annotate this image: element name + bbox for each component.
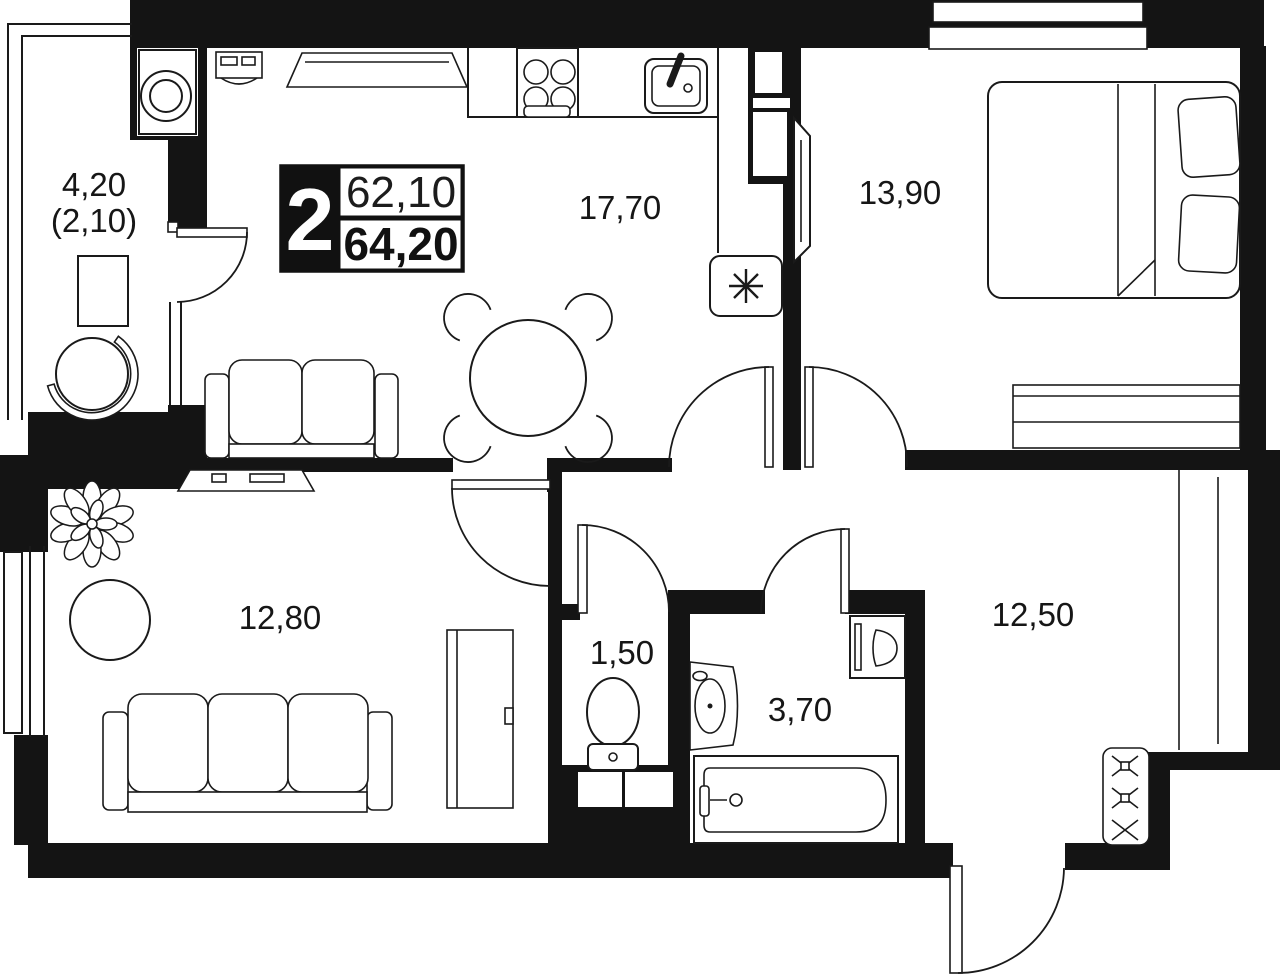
- bathroom-door-leaf: [841, 529, 849, 613]
- dining-chair: [444, 416, 491, 463]
- wall-segment: [550, 458, 672, 472]
- wall-segment: [1240, 46, 1266, 450]
- wardrobe-handle: [505, 708, 513, 724]
- bedroom-furniture: [794, 82, 1241, 448]
- tv-console: [178, 470, 314, 491]
- wall-segment: [168, 140, 207, 228]
- plant: [48, 481, 135, 567]
- bathroom-sink-tap: [693, 672, 707, 681]
- bathroom-sink-drain: [708, 704, 713, 709]
- bathroom-door-swing: [761, 529, 845, 613]
- intercom-curve: [221, 78, 257, 84]
- wall-segment: [168, 405, 207, 458]
- sofa-three-seat: [103, 694, 392, 812]
- balcony-area-note-label: (2,10): [51, 202, 137, 239]
- badge-living-area: 62,10: [346, 168, 456, 217]
- balcony-table: [78, 256, 128, 326]
- bathroom-area-label: 3,70: [768, 691, 832, 728]
- bedroom-balcony-window: [929, 27, 1147, 49]
- badge-rooms-count: 2: [286, 170, 335, 269]
- second-room-area-label: 12,50: [992, 596, 1075, 633]
- dining-chair: [444, 294, 491, 341]
- vent-compartment: [753, 98, 790, 108]
- balcony-area-label: 4,20: [62, 166, 126, 203]
- pillow: [1178, 195, 1240, 274]
- bedroom-tv: [794, 118, 810, 262]
- refrigerator-icon: [729, 269, 763, 303]
- bathtub-faucet: [700, 786, 709, 816]
- vent-compartment: [755, 52, 782, 93]
- dining-chair: [565, 294, 612, 341]
- bathroom-furniture: [690, 616, 905, 843]
- floor-plan-svg: 4,20 (2,10) 17,70 13,90 12,80 1,50 3,70 …: [0, 0, 1280, 975]
- tv-unit: [287, 53, 467, 87]
- living-room-door-leaf: [452, 480, 550, 489]
- exit-door-swing: [958, 868, 1064, 973]
- wall-segment: [1248, 450, 1280, 770]
- dining-table: [470, 320, 586, 436]
- balcony-door-swing: [177, 232, 247, 302]
- bedroom-door-leaf: [805, 367, 813, 467]
- exit-door-leaf: [950, 866, 962, 973]
- kitchen-door-leaf: [765, 367, 773, 467]
- unit-badge: 2 62,10 64,20: [281, 166, 463, 271]
- wc-door-leaf: [578, 525, 587, 613]
- balcony-door-leaf: [177, 228, 247, 237]
- bedroom-door-swing: [809, 367, 907, 467]
- wc-area-label: 1,50: [590, 634, 654, 671]
- toilet-button: [609, 753, 617, 761]
- vent-compartment: [578, 772, 622, 807]
- living-room-window-sill: [4, 552, 22, 733]
- badge-total-area: 64,20: [343, 218, 458, 270]
- wall-segment: [1145, 752, 1248, 770]
- wc-door-swing: [582, 525, 669, 612]
- bedroom-balcony-ledge: [933, 2, 1143, 22]
- dining-chair: [565, 416, 612, 463]
- wall-segment: [905, 450, 1248, 470]
- kitchen-door-swing: [669, 367, 769, 467]
- living-room-furniture: [48, 470, 513, 812]
- wall-segment: [14, 735, 48, 845]
- bathtub-drain: [730, 794, 742, 806]
- wall-segment: [668, 590, 765, 614]
- bedroom-dresser: [1013, 385, 1240, 448]
- floor-plan: 4,20 (2,10) 17,70 13,90 12,80 1,50 3,70 …: [0, 0, 1280, 975]
- toilet-bowl: [587, 678, 639, 746]
- wc-furniture: [587, 678, 639, 770]
- kitchen-faucet-handle: [684, 84, 692, 92]
- wall-segment: [548, 604, 580, 620]
- sofa-two-seat: [205, 360, 398, 458]
- balcony-chair: [56, 338, 128, 410]
- wall-segment: [905, 590, 925, 845]
- vent-compartment: [625, 772, 673, 807]
- living-room-area-label: 12,80: [239, 599, 322, 636]
- kitchen-living-area-label: 17,70: [579, 189, 662, 226]
- pillow: [1177, 96, 1240, 178]
- stove-panel: [524, 106, 570, 117]
- bedroom-area-label: 13,90: [859, 174, 942, 211]
- living-room-door-swing: [452, 488, 550, 586]
- wall-segment: [1065, 843, 1170, 870]
- vent-compartment: [753, 112, 787, 176]
- washing-machine-panel: [855, 624, 861, 670]
- wall-segment: [0, 455, 48, 552]
- wall-segment: [28, 843, 565, 878]
- round-table: [70, 580, 150, 660]
- wall-segment: [676, 843, 953, 878]
